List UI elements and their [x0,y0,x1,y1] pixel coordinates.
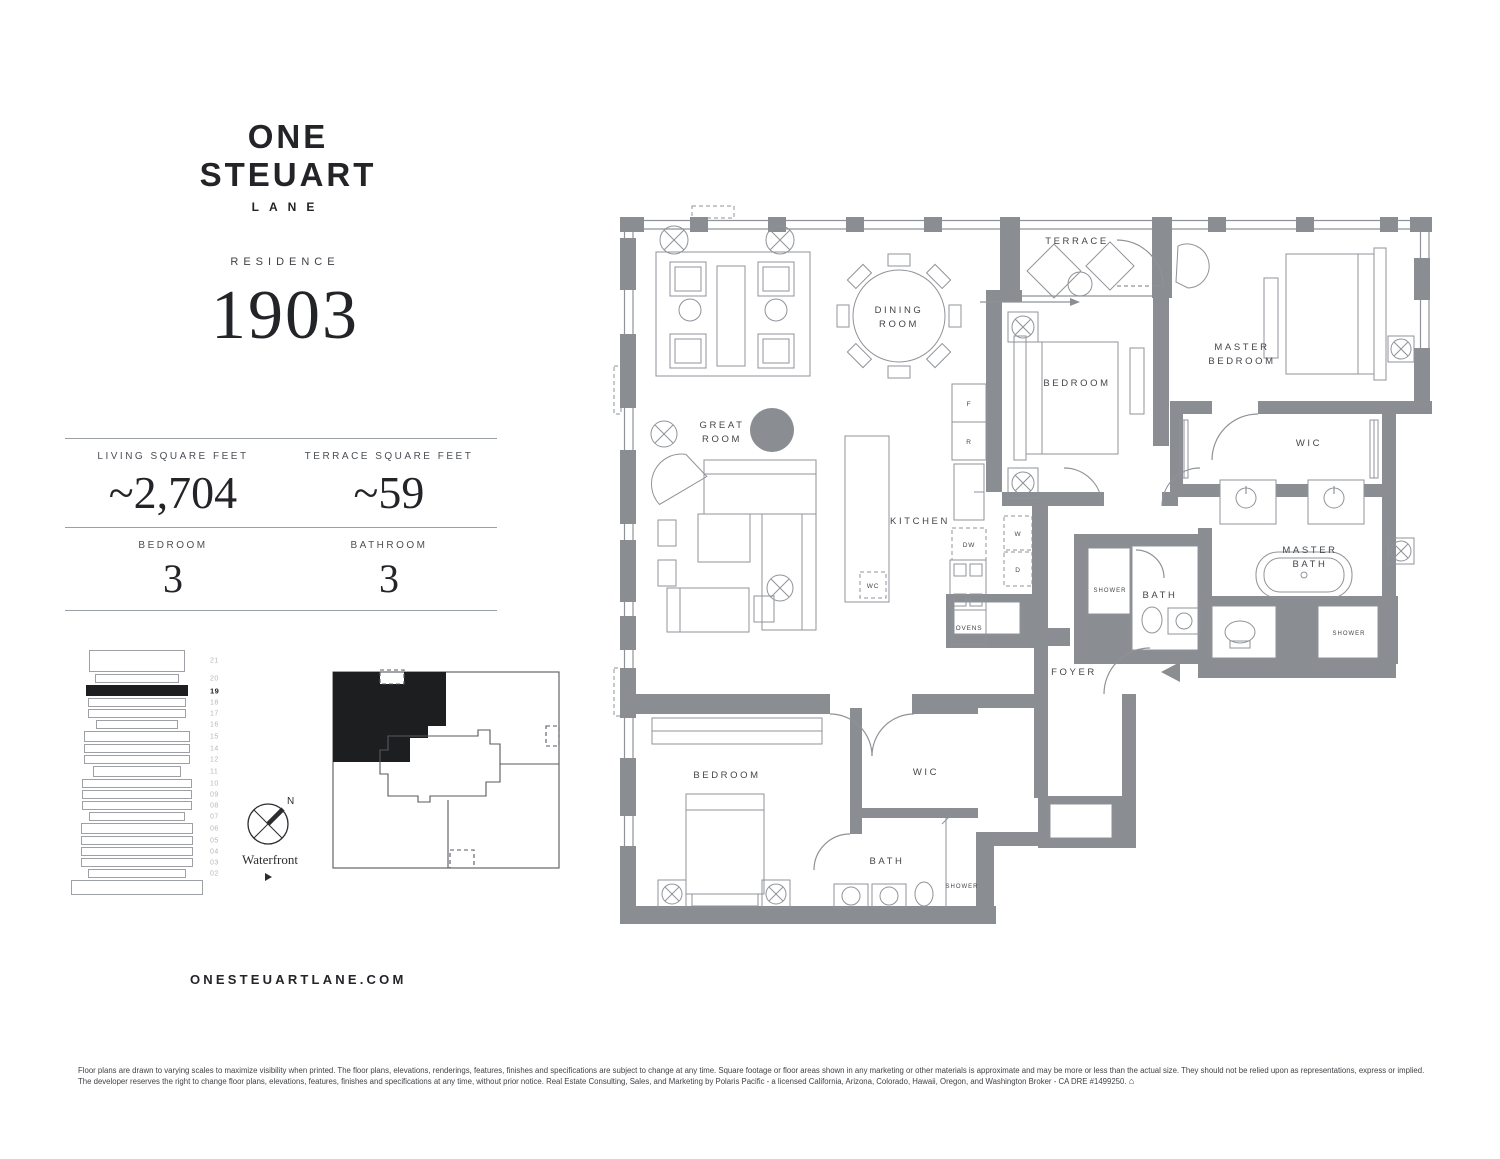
stack-floor-row: 11 [70,766,204,777]
stack-floor-bar [82,801,192,810]
walls [620,217,1432,924]
stack-floor-bar [81,823,193,834]
stack-floor-label: 21 [210,658,219,665]
brand-title: ONE STEUART [168,118,408,194]
waterfront-label: Waterfront [212,852,328,868]
stack-floor-label: 06 [210,825,219,832]
stack-floor-bar [82,779,192,788]
stack-floor-row: 10 [70,779,204,788]
label-bath-wing: BATH [869,856,904,867]
master-wic-fixtures [1180,420,1378,478]
stack-floor-label: 12 [210,756,219,763]
label-shower-wing: SHOWER [946,884,979,890]
stack-floor-label: 20 [210,675,219,682]
window-walls [614,206,1430,908]
label-master-bedroom-2: BEDROOM [1208,356,1275,367]
stack-floor-row: 19 [70,685,204,696]
stack-floor-bar [84,755,190,764]
stack-floor-bar [84,744,190,753]
label-master-bath-2: BATH [1292,559,1327,570]
residence-block: RESIDENCE 1903 [175,256,395,356]
stack-floor-bar [81,836,193,845]
stack-floor-row: 16 [70,720,204,729]
label-great-room-1: GREAT [699,420,744,431]
terrace-sqft-value: ~59 [281,466,497,519]
stack-floor-bar [88,869,186,878]
compass: N [236,790,302,852]
stack-floor-row: 21 [70,650,204,672]
label-kitchen: KITCHEN [890,516,950,527]
stack-floor-row: 17 [70,709,204,718]
label-appl-ovens: OVENS [956,625,983,632]
label-appl-w: W [1015,531,1022,538]
label-shower-master: SHOWER [1333,631,1366,637]
bedroom-mid-furniture [1014,336,1144,460]
stack-floor-bar [95,674,179,683]
stack-base [70,880,204,895]
stack-floor-row: 02 [70,869,204,878]
label-appl-dw: DW [963,542,975,549]
bathroom-count-label: BATHROOM [281,540,497,551]
compass-north-label: N [287,796,294,807]
stack-floor-bar [86,685,188,696]
stack-floor-label: 14 [210,745,219,752]
stack-floor-row: 03 [70,858,204,867]
bathroom-count-value: 3 [281,555,497,602]
label-bath-mid: BATH [1142,590,1177,601]
stats-table: LIVING SQUARE FEET ~2,704 TERRACE SQUARE… [65,438,497,611]
key-plan [330,664,565,876]
accent-dot [750,408,794,452]
stack-floor-row: 09 [70,790,204,799]
label-terrace: TERRACE [1045,236,1109,247]
floor-plan-sheet: ONE STEUART LANE RESIDENCE 1903 LIVING S… [0,0,1500,1159]
stack-floor-label: 02 [210,870,219,877]
label-appl-wc: WC [867,583,879,590]
stack-floor-label: 07 [210,813,219,820]
stack-floor-bar [81,858,193,867]
stack-floor-row: 07 [70,812,204,821]
brand-subtitle: LANE [168,200,408,214]
stack-floor-label: 18 [210,699,219,706]
stack-floor-row: 08 [70,801,204,810]
stack-floor-bar [82,790,192,799]
stack-floor-label: 05 [210,837,219,844]
stack-floor-bar [89,650,185,672]
stack-floor-bar [88,698,186,707]
stack-floor-row: 14 [70,744,204,753]
stack-floor-row: 20 [70,674,204,683]
label-appl-d: D [1015,567,1021,574]
label-foyer: FOYER [1051,667,1097,678]
label-bedroom-mid: BEDROOM [1043,378,1110,389]
floor-plan: TERRACE DINING ROOM MASTER BEDROOM BEDRO… [612,198,1448,948]
stack-floor-row: 15 [70,731,204,742]
stack-floor-label: 19 [210,686,219,695]
label-bedroom-wing: BEDROOM [693,770,760,781]
divider [65,610,497,611]
stack-floor-row: 12 [70,755,204,764]
label-master-bath-1: MASTER [1282,545,1337,556]
brand-logo: ONE STEUART LANE [168,118,408,214]
label-great-room-2: ROOM [702,434,742,445]
stack-floor-row: 04 [70,847,204,856]
stack-floor-label: 15 [210,733,219,740]
stack-floor-row: 05 [70,836,204,845]
stack-floor-bar [84,731,190,742]
label-shower-mid: SHOWER [1094,588,1127,594]
website-url: ONESTEUARTLANE.COM [190,972,407,987]
stack-floor-label: 09 [210,791,219,798]
label-wic-master: WIC [1296,438,1322,449]
label-master-bedroom-1: MASTER [1214,342,1269,353]
stack-floor-label: 08 [210,802,219,809]
stack-floor-label: 17 [210,710,219,717]
entry-arrow-icon [1161,662,1180,682]
bedroom-count-value: 3 [65,555,281,602]
stack-floor-bar [96,720,178,729]
label-appl-f: F [967,401,972,408]
stack-floor-label: 11 [210,768,218,775]
disclaimer: Floor plans are drawn to varying scales … [78,1066,1428,1087]
living-sqft-label: LIVING SQUARE FEET [65,451,281,462]
label-wic-wing: WIC [913,767,939,778]
stack-floor-bar [93,766,181,777]
equal-housing-icon: ⌂ [1129,1076,1134,1086]
waterfront-arrow-icon [265,873,272,881]
living-sqft-value: ~2,704 [65,466,281,519]
stack-base-bar [71,880,203,895]
label-dining-2: ROOM [879,319,919,330]
key-plan-unit-highlight [333,672,446,762]
stack-floor-row: 18 [70,698,204,707]
disclaimer-text: Floor plans are drawn to varying scales … [78,1066,1424,1086]
stack-floor-bar [88,709,186,718]
stack-floor-label: 10 [210,780,219,787]
stack-floor-bar [81,847,193,856]
residence-label: RESIDENCE [175,256,395,268]
stack-floor-bar [89,812,185,821]
residence-number: 1903 [175,276,395,356]
stack-floor-row: 06 [70,823,204,834]
compass-needle [268,809,283,824]
label-appl-r: R [966,439,972,446]
stack-floor-label: 16 [210,721,219,728]
label-dining-1: DINING [875,305,924,316]
dining-table [837,254,961,378]
bedroom-count-label: BEDROOM [65,540,281,551]
terrace-sqft-label: TERRACE SQUARE FEET [281,451,497,462]
